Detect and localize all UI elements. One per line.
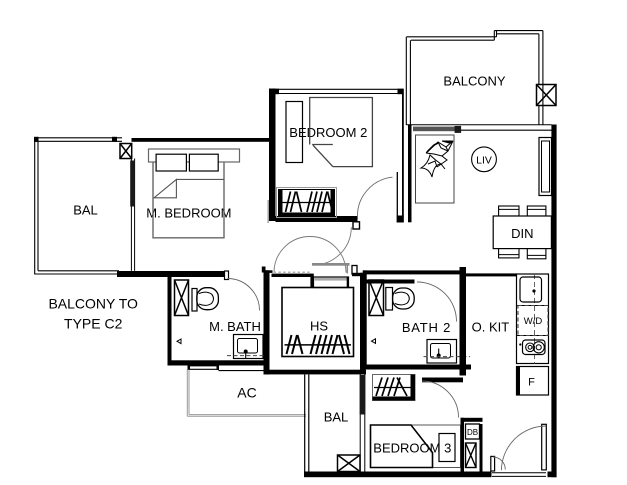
- svg-text:BAL: BAL: [324, 410, 349, 425]
- svg-text:DB: DB: [467, 428, 478, 437]
- svg-text:HS: HS: [310, 319, 328, 334]
- svg-text:O. KIT: O. KIT: [472, 320, 510, 335]
- svg-text:M. BATH: M. BATH: [209, 319, 261, 334]
- svg-text:W/D: W/D: [524, 316, 543, 327]
- svg-text:M. BEDROOM: M. BEDROOM: [146, 206, 231, 221]
- svg-text:AC: AC: [237, 385, 256, 401]
- svg-text:BEDROOM 2: BEDROOM 2: [289, 125, 367, 140]
- svg-text:TYPE C2: TYPE C2: [64, 316, 123, 332]
- svg-text:BEDROOM 3: BEDROOM 3: [373, 441, 451, 456]
- svg-text:LIV: LIV: [476, 154, 492, 166]
- svg-text:BATH 2: BATH 2: [402, 320, 451, 335]
- svg-text:BAL: BAL: [73, 203, 98, 218]
- svg-text:F: F: [528, 377, 535, 389]
- svg-text:BALCONY: BALCONY: [443, 74, 505, 89]
- svg-text:DIN: DIN: [511, 226, 533, 241]
- svg-text:BALCONY TO: BALCONY TO: [48, 296, 138, 312]
